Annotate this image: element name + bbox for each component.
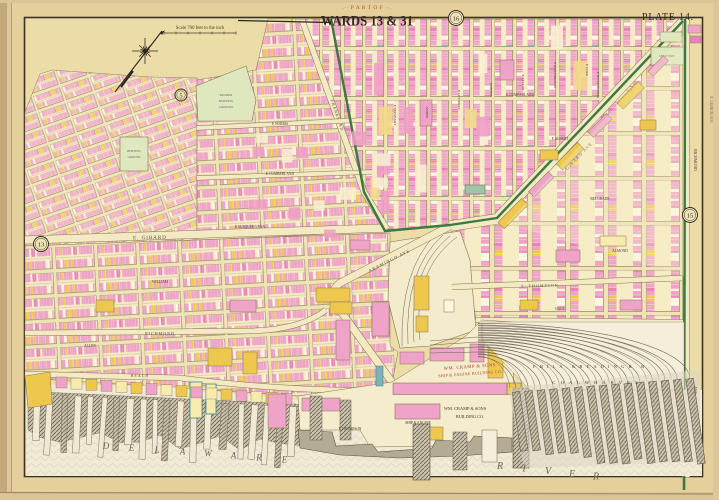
svg-text:BURYING: BURYING [127, 149, 141, 153]
svg-text:I: I [521, 464, 526, 475]
svg-text:E CUMBERLAND: E CUMBERLAND [506, 93, 535, 97]
svg-text:E ALBERT: E ALBERT [552, 137, 569, 141]
svg-text:E: E [128, 443, 135, 453]
svg-text:16: 16 [453, 15, 460, 22]
svg-text:WILLIAM: WILLIAM [152, 280, 169, 284]
svg-text:BURYING: BURYING [219, 99, 234, 103]
svg-text:P H I L A . & R E A D I N G: P H I L A . & R E A D I N G R . R . [533, 364, 651, 369]
svg-text:E HUNTINGDON: E HUNTINGDON [553, 62, 557, 88]
svg-text:RICHMOND: RICHMOND [693, 149, 698, 171]
svg-text:WM. CRAMP & SONS: WM. CRAMP & SONS [444, 406, 487, 411]
svg-text:E. LEHIGH AVE.: E. LEHIGH AVE. [709, 96, 713, 123]
svg-text:AMBER: AMBER [425, 106, 429, 119]
svg-text:E YORK: E YORK [585, 64, 589, 77]
svg-text:ALMOND: ALMOND [612, 249, 628, 253]
svg-text:ALLEN: ALLEN [84, 344, 96, 348]
svg-text:E: E [568, 469, 575, 480]
svg-text:WARDS 13 & 31: WARDS 13 & 31 [321, 14, 413, 30]
svg-text:.·· P A R T O F ··.: .·· P A R T O F ··. [342, 5, 391, 11]
svg-text:BUILDING CO.: BUILDING CO. [456, 414, 484, 419]
svg-text:MARTHA: MARTHA [489, 83, 493, 98]
svg-text:R: R [592, 471, 599, 482]
svg-text:E THOMPSON: E THOMPSON [339, 427, 362, 431]
svg-text:R: R [255, 452, 262, 462]
svg-text:E: E [281, 454, 288, 464]
svg-text:R: R [496, 461, 503, 472]
svg-text:GROUND: GROUND [128, 155, 142, 159]
svg-text:E SERGEANT: E SERGEANT [393, 105, 397, 127]
svg-text:PLATE 14.: PLATE 14. [642, 11, 694, 23]
svg-text:BELGRADE: BELGRADE [590, 197, 610, 201]
svg-text:E TAYLOR: E TAYLOR [521, 74, 525, 91]
svg-text:E HUNTINGDON: E HUNTINGDON [596, 72, 600, 98]
svg-text:AVE: AVE [693, 386, 698, 394]
svg-text:C O A L W H A R V E S: C O A L W H A R V E S [552, 380, 639, 385]
svg-text:BEACH: BEACH [131, 373, 150, 378]
svg-text:GAUL: GAUL [555, 307, 565, 311]
svg-text:13: 13 [38, 241, 45, 248]
svg-text:RICHMOND: RICHMOND [145, 331, 175, 336]
svg-text:L: L [153, 445, 159, 455]
svg-text:E LETTERLY: E LETTERLY [457, 90, 461, 110]
svg-text:E SUSQUEHANNA: E SUSQUEHANNA [235, 225, 265, 229]
svg-text:PALMER: PALMER [220, 93, 234, 97]
svg-text:A: A [179, 447, 186, 457]
svg-text:E NORRIS: E NORRIS [272, 122, 288, 126]
svg-text:D: D [102, 441, 110, 451]
svg-text:E. GIRARD: E. GIRARD [133, 236, 167, 242]
svg-text:5: 5 [179, 92, 182, 99]
svg-text:15: 15 [687, 212, 694, 219]
svg-text:GROUND: GROUND [219, 105, 233, 109]
svg-text:Scale 700 feet to the inch: Scale 700 feet to the inch [176, 26, 225, 31]
svg-text:A: A [230, 451, 237, 461]
svg-text:E CUMBERLAND: E CUMBERLAND [266, 172, 295, 176]
svg-text:E. THOMPSON: E. THOMPSON [521, 283, 558, 289]
